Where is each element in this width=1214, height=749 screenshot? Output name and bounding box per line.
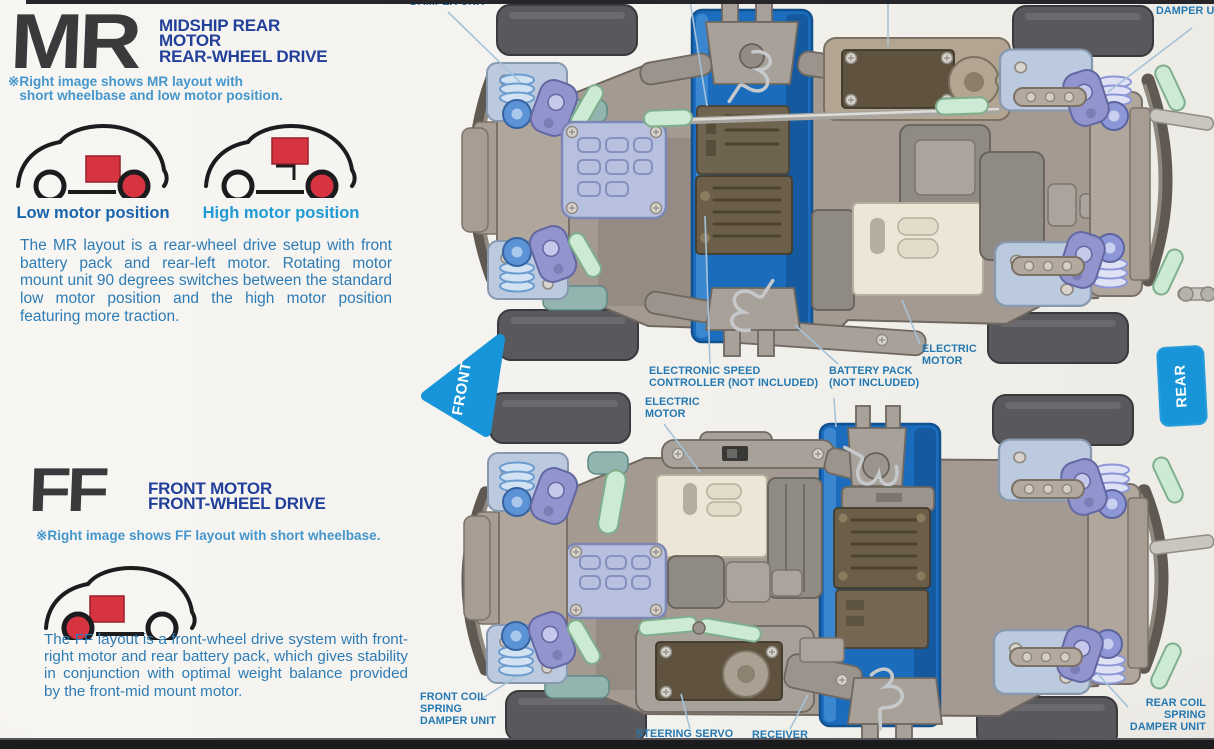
label-front-coil: FRONT COIL SPRING DAMPER UNIT [420, 692, 496, 727]
front-marker-text: FRONT [449, 360, 475, 416]
ff-electric-motor-unit [657, 475, 767, 557]
ff-tire-front-top [490, 393, 630, 443]
ff-chassis-illustration [464, 393, 1214, 747]
ff-battery-box [836, 590, 928, 648]
label-battery-pack: BATTERY PACK (NOT INCLUDED) [829, 366, 919, 390]
label-damper-unit-top-right: DAMPER UNIT [1156, 6, 1214, 18]
label-esc: ELECTRONIC SPEED CONTROLLER (NOT INCLUDE… [649, 366, 818, 390]
ff-front-gearbox [566, 544, 666, 618]
mr-tire-front-top [497, 5, 637, 55]
mr-tire-front-bottom [498, 310, 638, 360]
front-direction-marker: FRONT [430, 346, 494, 430]
page-edge-bottom [0, 738, 1214, 749]
rear-marker-text: REAR [1173, 364, 1191, 408]
label-electric-motor-ff: ELECTRIC MOTOR [645, 397, 700, 421]
label-rear-coil: REAR COIL SPRING DAMPER UNIT [1108, 698, 1206, 733]
mr-front-gearbox [562, 122, 666, 218]
rear-direction-marker: REAR [1156, 345, 1208, 427]
chassis-diagram [0, 0, 1214, 749]
ff-tire-rear-top [993, 395, 1133, 445]
manual-page: { "mr_section": { "logo": "MR", "heading… [0, 0, 1214, 749]
ff-esc-box [834, 508, 930, 588]
mr-tire-rear-top [1013, 6, 1153, 56]
page-edge-top [26, 0, 1214, 4]
mr-chassis-illustration [462, 0, 1214, 363]
label-electric-motor-mr: ELECTRIC MOTOR [922, 344, 977, 368]
mr-esc-box [696, 176, 792, 254]
mr-electric-motor-unit [853, 203, 983, 295]
